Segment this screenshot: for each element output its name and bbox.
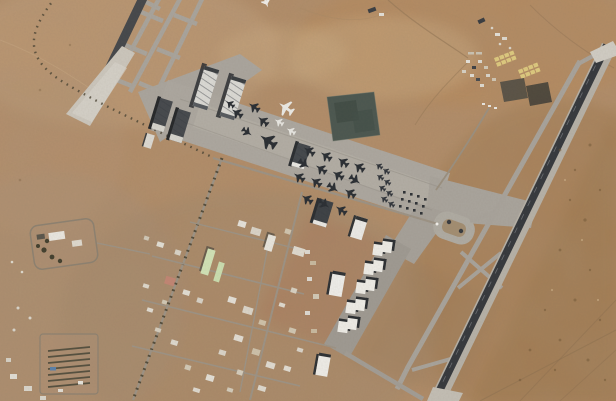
speckles-shape — [0, 0, 616, 401]
screenshot — [0, 0, 616, 401]
speckles — [0, 0, 616, 401]
satellite-scene — [0, 0, 616, 401]
